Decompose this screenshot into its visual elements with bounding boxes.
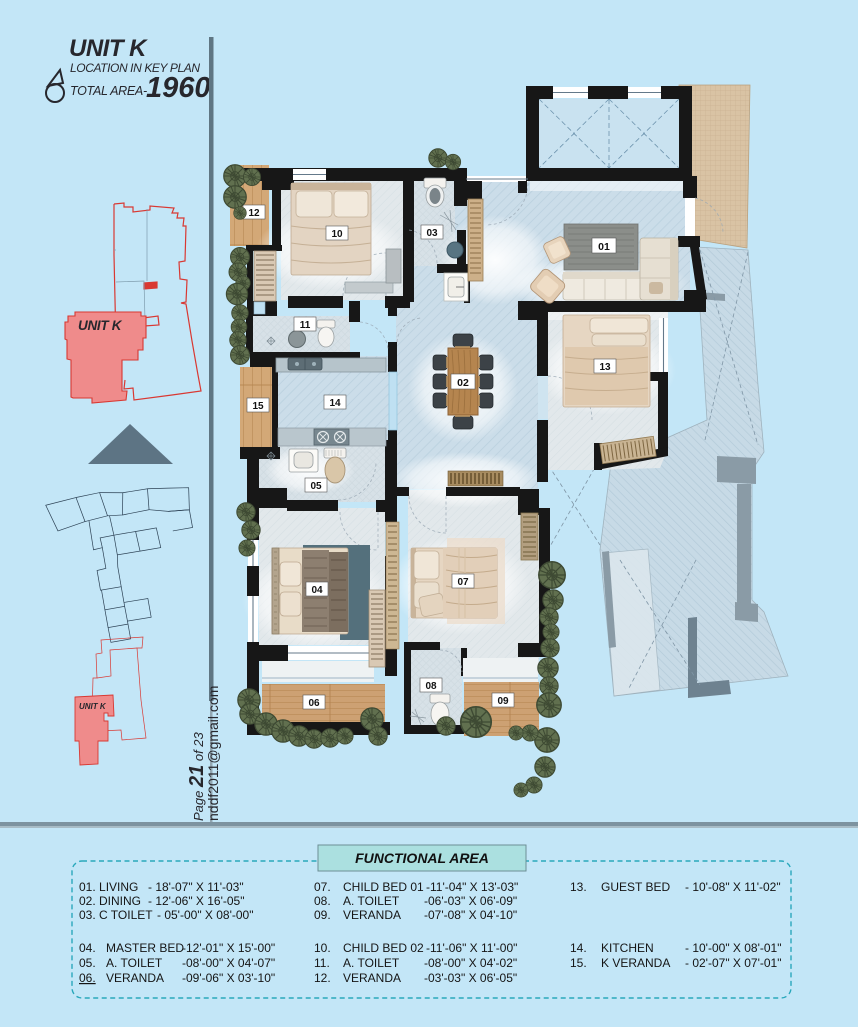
svg-text:-08'-00" X 04'-02": -08'-00" X 04'-02" xyxy=(424,956,517,970)
svg-text:09.: 09. xyxy=(314,908,331,922)
svg-text:- 10'-00" X 08'-01": - 10'-00" X 08'-01" xyxy=(685,941,782,955)
svg-text:A. TOILET: A. TOILET xyxy=(106,956,163,970)
svg-text:KITCHEN: KITCHEN xyxy=(601,941,654,955)
svg-text:06: 06 xyxy=(308,698,320,709)
svg-text:07.: 07. xyxy=(314,880,331,894)
svg-text:15.: 15. xyxy=(570,956,587,970)
svg-text:08: 08 xyxy=(425,681,437,692)
svg-text:-11'-06" X 11'-00": -11'-06" X 11'-00" xyxy=(426,941,517,955)
svg-text:A. TOILET: A. TOILET xyxy=(343,956,400,970)
svg-text:TOTAL AREA-: TOTAL AREA- xyxy=(70,84,147,98)
svg-text:FUNCTIONAL AREA: FUNCTIONAL AREA xyxy=(355,850,489,866)
svg-text:- 12'-06" X 16'-05": - 12'-06" X 16'-05" xyxy=(148,894,245,908)
svg-text:CHILD BED 01: CHILD BED 01 xyxy=(343,880,424,894)
svg-text:04.: 04. xyxy=(79,941,96,955)
svg-text:13: 13 xyxy=(599,362,611,373)
svg-text:07: 07 xyxy=(457,577,469,588)
svg-text:01: 01 xyxy=(598,241,610,253)
svg-text:05.: 05. xyxy=(79,956,96,970)
svg-text:14: 14 xyxy=(329,398,341,409)
svg-text:UNIT K: UNIT K xyxy=(69,35,148,62)
svg-text:K VERANDA: K VERANDA xyxy=(601,956,670,970)
svg-text:- 10'-08" X 11'-02": - 10'-08" X 11'-02" xyxy=(685,880,781,894)
svg-text:-03'-03" X 06'-05": -03'-03" X 06'-05" xyxy=(424,971,517,985)
svg-text:-08'-00" X 04'-07": -08'-00" X 04'-07" xyxy=(182,956,275,970)
svg-text:VERANDA: VERANDA xyxy=(106,971,164,985)
svg-text:nddf2011@gmail.com: nddf2011@gmail.com xyxy=(205,686,221,821)
svg-text:- 18'-07" X 11'-03": - 18'-07" X 11'-03" xyxy=(148,880,244,894)
svg-text:1960: 1960 xyxy=(146,72,211,104)
svg-text:-09'-06" X 03'-10": -09'-06" X 03'-10" xyxy=(182,971,275,985)
svg-text:15: 15 xyxy=(252,401,264,412)
svg-text:11.: 11. xyxy=(314,956,330,970)
svg-text:11: 11 xyxy=(300,320,311,331)
svg-text:- 05'-00" X 08'-00": - 05'-00" X 08'-00" xyxy=(157,908,254,922)
svg-text:VERANDA: VERANDA xyxy=(343,908,401,922)
svg-text:14.: 14. xyxy=(570,941,587,955)
svg-text:UNIT K: UNIT K xyxy=(79,702,107,711)
svg-text:10: 10 xyxy=(331,229,343,240)
svg-text:13.: 13. xyxy=(570,880,587,894)
svg-text:12: 12 xyxy=(248,208,260,219)
svg-text:MASTER BED: MASTER BED xyxy=(106,941,184,955)
svg-text:-06'-03" X 06'-09": -06'-03" X 06'-09" xyxy=(424,894,517,908)
svg-text:-12'-01" X 15'-00": -12'-01" X 15'-00" xyxy=(182,941,275,955)
svg-text:CHILD BED 02: CHILD BED 02 xyxy=(343,941,424,955)
svg-text:10.: 10. xyxy=(314,941,331,955)
svg-text:03: 03 xyxy=(426,228,438,239)
svg-text:A. TOILET: A. TOILET xyxy=(343,894,400,908)
svg-text:01. LIVING: 01. LIVING xyxy=(79,880,138,894)
svg-text:-07'-08" X 04'-10": -07'-08" X 04'-10" xyxy=(424,908,517,922)
svg-text:03. C TOILET: 03. C TOILET xyxy=(79,908,153,922)
svg-text:UNIT K: UNIT K xyxy=(78,318,123,333)
svg-text:02: 02 xyxy=(457,377,469,389)
svg-text:09: 09 xyxy=(497,696,509,707)
svg-text:08.: 08. xyxy=(314,894,331,908)
svg-text:VERANDA: VERANDA xyxy=(343,971,401,985)
svg-text:GUEST BED: GUEST BED xyxy=(601,880,670,894)
svg-text:- 02'-07" X 07'-01": - 02'-07" X 07'-01" xyxy=(685,956,782,970)
svg-text:05: 05 xyxy=(310,481,322,492)
svg-text:04: 04 xyxy=(311,585,323,596)
svg-text:-11'-04" X 13'-03": -11'-04" X 13'-03" xyxy=(426,880,518,894)
svg-text:12.: 12. xyxy=(314,971,331,985)
svg-text:06.: 06. xyxy=(79,971,96,985)
svg-text:02. DINING: 02. DINING xyxy=(79,894,141,908)
